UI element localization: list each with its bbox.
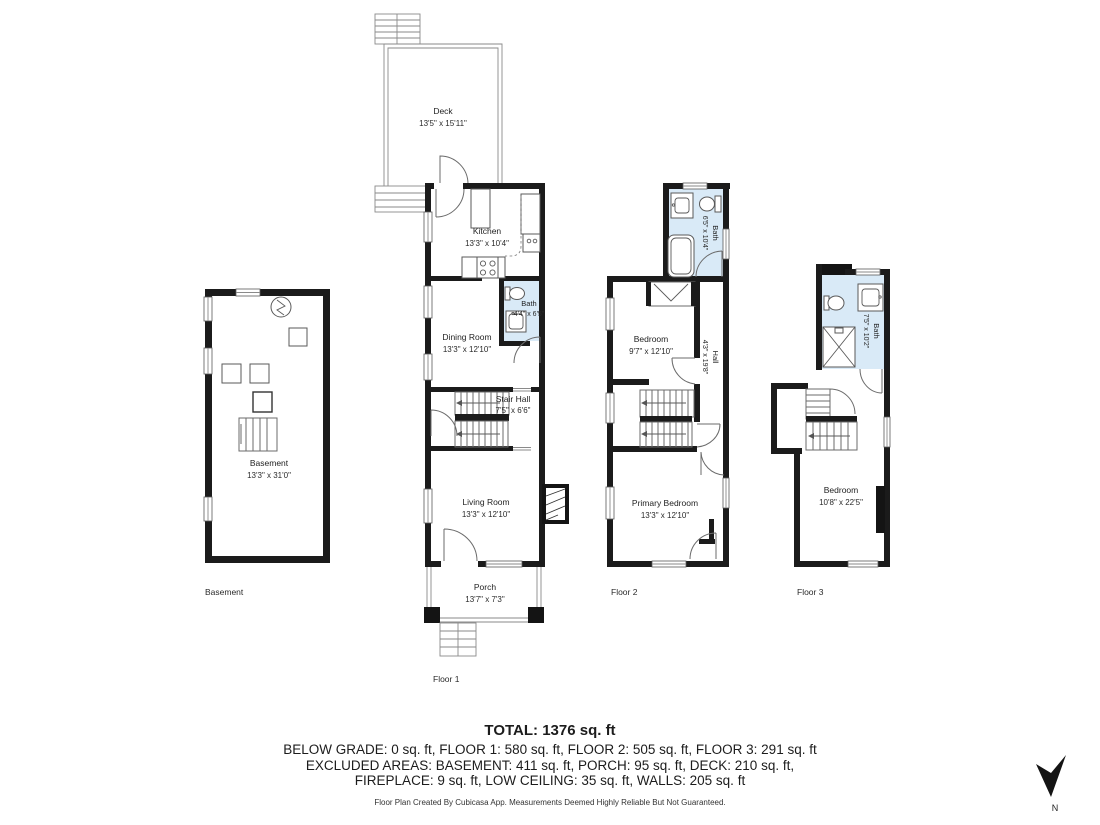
stair-direction-arrow [808,433,814,439]
floor2-bedroom-name: Bedroom [634,334,669,344]
bedroom-closet [646,282,696,306]
stair-direction-arrow [641,400,647,406]
stair-direction-arrow [456,400,462,406]
floor2-stairs [640,390,694,447]
porch-stairs [440,623,476,656]
floor-plan-page: Basement 13'3" x 31'0" Basement Deck 13'… [0,0,1100,825]
porch-dims: 13'7" x 7'3" [465,595,505,604]
stair-hall-name: Stair Hall [496,394,531,404]
floor2-plan: Bath 6'5" x 10'4" Bedroom 9'7" x 12'10" … [606,183,730,597]
porch: Porch 13'7" x 7'3" [424,567,544,656]
floor1-plan: Deck 13'5" x 15'11" [375,14,569,684]
closet-chevron-icon [654,284,688,301]
basement-top-window [236,289,260,296]
basement-floor-label: Basement [205,587,244,597]
svg-text:7'5" x 10'2": 7'5" x 10'2" [862,314,869,349]
porch-door-arc [441,529,478,567]
vanity-sink-icon [858,284,883,311]
porch-name: Porch [474,582,496,592]
floor3-bath-door [860,369,882,393]
floor1-bath-name: Bath [521,299,536,308]
floor3-bedroom-name: Bedroom [824,485,859,495]
floor3-bath-window [856,269,880,275]
primary-closet [699,519,715,544]
stair-hall-door [431,410,457,436]
primary-bedroom-name: Primary Bedroom [632,498,698,508]
vanity-sink-icon [671,193,693,218]
deck: Deck 13'5" x 15'11" [375,14,502,212]
living-name: Living Room [462,497,509,507]
appliance-box-icon [222,328,307,412]
basement-stairs [239,418,277,451]
kitchen-deck-door [434,183,464,217]
dining-name: Dining Room [442,332,491,342]
svg-text:Bath: Bath [872,323,881,338]
living-dims: 13'3" x 12'10" [462,510,510,519]
svg-text:4'3" x 19'8": 4'3" x 19'8" [701,340,708,375]
kitchen-dims: 13'3" x 10'4" [465,239,509,248]
deck-dims: 13'5" x 15'11" [419,119,467,128]
summary-line-3: FIREPLACE: 9 sq. ft, LOW CEILING: 35 sq.… [0,773,1100,789]
area-summary: TOTAL: 1376 sq. ft BELOW GRADE: 0 sq. ft… [0,722,1100,807]
chimney [876,486,885,533]
basement-room-dims: 13'3" x 31'0" [247,471,291,480]
dining-dims: 13'3" x 12'10" [443,345,491,354]
porch-post [424,607,440,623]
floor2-bedroom-dims: 9'7" x 12'10" [629,347,673,356]
svg-text:Hall: Hall [711,351,720,364]
stair-hall-dims: 7'5" x 6'6" [496,406,531,415]
kitchen-name: Kitchen [473,226,502,236]
deck-name: Deck [433,106,453,116]
floor-plan-canvas: Basement 13'3" x 31'0" Basement Deck 13'… [0,0,1100,825]
water-heater-icon [271,297,291,317]
fireplace-icon [542,484,569,524]
floor3-bedroom-dims: 10'8" x 22'5" [819,498,863,507]
deck-stairs-bottom [375,186,427,212]
summary-disclaimer: Floor Plan Created By Cubicasa App. Meas… [0,798,1100,807]
basement-plan: Basement 13'3" x 31'0" Basement [204,289,330,597]
bathtub-icon [668,235,694,277]
hall-door-arc [697,424,724,475]
floor3-bath: Bath 7'5" x 10'2" [822,269,884,393]
deck-stairs-top [375,14,420,44]
svg-text:Bath: Bath [711,225,720,240]
floor1-label: Floor 1 [433,674,460,684]
stove-icon [477,257,498,278]
floor3-landing-door [830,389,855,414]
basement-room-name: Basement [250,458,289,468]
toilet-icon [824,296,844,310]
svg-text:6'5" x 10'4": 6'5" x 10'4" [701,216,708,251]
summary-line-1: BELOW GRADE: 0 sq. ft, FLOOR 1: 580 sq. … [0,742,1100,758]
floor1-bath: Bath 4'4" x 6'5" [504,281,545,341]
shower-icon [823,327,855,367]
stair-direction-arrow [641,431,647,437]
porch-post [528,607,544,623]
toilet-icon [700,196,722,212]
floor1-bottom-window [486,561,522,567]
floor2-bedroom-door [672,358,695,384]
floor3-plan: Bath 7'5" x 10'2" B [771,264,890,597]
hall-label: Hall 4'3" x 19'8" [701,340,720,375]
floor2-label: Floor 2 [611,587,638,597]
summary-total: TOTAL: 1376 sq. ft [0,722,1100,739]
summary-line-2: EXCLUDED AREAS: BASEMENT: 411 sq. ft, PO… [0,758,1100,774]
kitchen-island [471,189,490,228]
floor1-bath-dims: 4'4" x 6'5" [514,311,545,318]
primary-bedroom-dims: 13'3" x 12'10" [641,511,689,520]
floor3-label: Floor 3 [797,587,824,597]
deck-door-arc [440,156,468,184]
floor2-bath: Bath 6'5" x 10'4" [668,183,729,277]
